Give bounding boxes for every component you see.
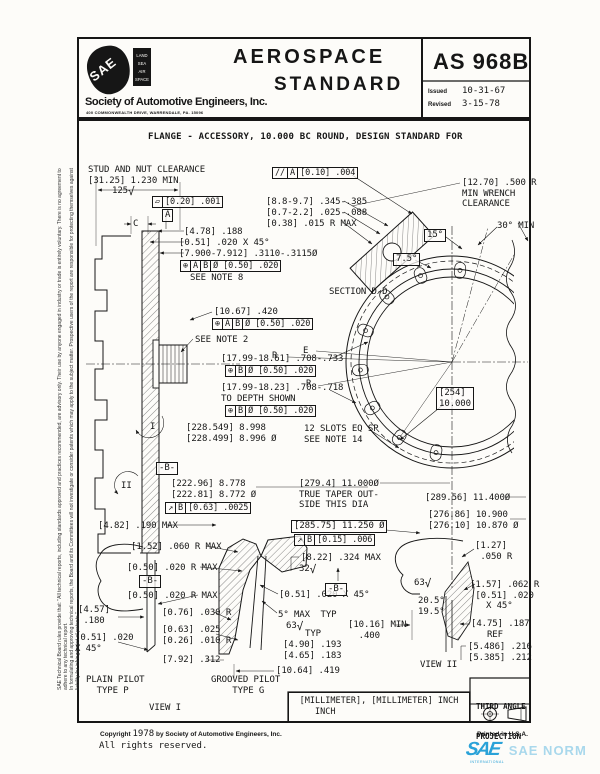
issued-date: 10-31-67: [462, 86, 505, 96]
dim-label: [8.8-9.7] .345-.385: [266, 197, 367, 208]
issued-label: Issued: [428, 89, 447, 95]
surface-finish-mark: 63√: [286, 621, 303, 633]
sae-norm-watermark: SAE SAE NORM: [466, 739, 587, 761]
surface-finish-mark: 125√: [112, 186, 135, 198]
dim-label: 5° MAX TYP: [278, 610, 337, 621]
finish-check-icon: √: [310, 563, 317, 576]
fcf-cell: Ø [0.50] .020: [245, 406, 315, 416]
fcf-cell: ⊕: [226, 366, 235, 376]
datum-box: 7.5°: [393, 253, 420, 266]
dim-label: VIEW I: [149, 703, 181, 714]
logo-tag-land: LAND: [136, 53, 147, 58]
dim-label: II: [121, 481, 132, 492]
fcf-cell: B: [232, 319, 242, 329]
dim-label: [0.51] .020 X 45°: [179, 238, 269, 249]
dim-label: [0.63] .025 [0.26] .010 R: [162, 625, 231, 646]
feature-control-frame: ↗B[0.63] .0025: [165, 502, 251, 514]
doc-number: AS 968B: [433, 49, 529, 75]
datum-box: -B-: [156, 462, 178, 475]
fcf-cell: [0.10] .004: [297, 168, 357, 178]
dim-label: R: [306, 379, 311, 390]
fcf-cell: B: [304, 535, 314, 545]
dim-label: [4.57] .180: [78, 605, 110, 626]
dim-label: [279.4] 11.000Ø TRUE TAPER OUT- SIDE THI…: [299, 479, 379, 511]
fcf-cell: A: [190, 261, 200, 271]
dim-label: [7.92] .312: [162, 655, 221, 666]
dim-label: SECTION D-D: [329, 287, 388, 298]
dim-label: C: [133, 219, 138, 230]
dim-label: [289.56] 11.400Ø: [425, 493, 510, 504]
finish-check-icon: √: [297, 620, 304, 633]
units-line2: INCH: [289, 707, 469, 718]
dim-label: GROOVED PILOT TYPE G: [211, 675, 280, 696]
disclaimer-line1: SAE Technical Board rules provide that: …: [57, 162, 69, 690]
fcf-cell: ⊕: [213, 319, 222, 329]
dim-label: [7.900-7.912] .3110-.3115Ø: [179, 249, 317, 260]
dim-label: [5.486] .216 [5.385] .212: [468, 642, 532, 663]
dim-label: [1.27] .050 R: [475, 541, 512, 562]
feature-control-frame: ↗B[0.15] .006: [294, 534, 375, 546]
fcf-cell: A: [287, 168, 297, 178]
fcf-cell: Ø [0.50] .020: [245, 366, 315, 376]
fcf-cell: [0.15] .006: [314, 535, 374, 545]
org-name: Society of Automotive Engineers, Inc.: [85, 96, 267, 108]
feature-control-frame: //A[0.10] .004: [272, 167, 358, 179]
sae-logo: SAE LAND SEA AIR SPACE: [87, 46, 151, 95]
dim-label: [8.22] .324 MAX: [301, 553, 381, 564]
fcf-cell: Ø [0.50] .020: [210, 261, 280, 271]
dim-label: [222.96] 8.778 [222.81] 8.772 Ø: [171, 479, 256, 500]
dim-label: [228.549] 8.998 [228.499] 8.996 Ø: [186, 423, 276, 444]
surface-finish-mark: 63√: [414, 578, 431, 590]
logo-tag-air: AIR: [139, 69, 146, 74]
dim-label: TO DEPTH SHOWN: [221, 394, 295, 405]
fcf-cell: ⊕: [181, 261, 190, 271]
revised-label: Revised: [428, 102, 451, 108]
dim-label: I: [150, 422, 155, 433]
doc-type-line1: AEROSPACE: [233, 46, 385, 69]
datum-box: [285.75] 11.250 Ø: [291, 520, 387, 533]
datum-box: A: [162, 209, 173, 222]
section-dd: [350, 212, 434, 292]
fcf-cell: B: [235, 366, 245, 376]
dim-label: [12.70] .500 R MIN WRENCH CLEARANCE: [462, 178, 536, 210]
fcf-cell: B: [175, 503, 185, 513]
fcf-cell: ↗: [295, 535, 304, 545]
dim-label: [4.90] .193 [4.65] .183: [283, 640, 342, 661]
fcf-cell: B: [200, 261, 210, 271]
document-page: SAE LAND SEA AIR SPACE: [0, 0, 600, 774]
finish-check-icon: √: [425, 577, 432, 590]
dim-label: 20.5° 19.5°: [418, 596, 445, 617]
org-address: 400 COMMONWEALTH DRIVE, WARRENDALE, PA. …: [86, 110, 203, 115]
fcf-cell: A: [222, 319, 232, 329]
dim-label: [0.51] .020 X 45°: [75, 633, 134, 654]
fcf-cell: B: [235, 406, 245, 416]
finish-check-icon: √: [128, 185, 135, 198]
dim-label: [10.16] MIN .400: [348, 620, 407, 641]
fcf-cell: Ø [0.50] .020: [242, 319, 312, 329]
dim-label: [17.99-18.23] .708-.718: [221, 383, 343, 394]
dim-label: [0.50] .020 R MAX: [127, 591, 217, 602]
copyright-year: 1978: [133, 729, 155, 739]
logo-tag-sea: SEA: [138, 61, 147, 66]
dim-label: PLAIN PILOT TYPE P: [86, 675, 145, 696]
projection-line1: THIRD ANGLE: [476, 702, 526, 712]
datum-box: 15°: [424, 229, 446, 242]
dim-label: [0.38] .015 R MAX: [266, 219, 356, 230]
dim-label: SEE NOTE 8: [190, 273, 243, 284]
sae-blue-logo: SAE: [464, 739, 501, 761]
fcf-cell: ⊕: [226, 406, 235, 416]
units-line1: [MILLIMETER], [MILLIMETER] INCH: [289, 696, 469, 707]
standard-title: FLANGE - ACCESSORY, 10.000 BC ROUND, DES…: [148, 132, 463, 142]
fcf-cell: //: [273, 168, 287, 178]
feature-control-frame: ▱[0.20] .001: [152, 196, 223, 208]
dim-label: TYP: [305, 629, 321, 640]
fcf-cell: ▱: [153, 197, 162, 207]
logo-tag-space: SPACE: [135, 77, 149, 82]
dim-label: [0.76] .030 R: [162, 608, 231, 619]
dim-label: STUD AND NUT CLEARANCE: [88, 165, 205, 176]
dim-label: [1.57] .062 R [0.51] .020 X 45°: [470, 580, 539, 612]
dim-label: 12 SLOTS EQ SP SEE NOTE 14: [304, 424, 378, 445]
copyright-line: Copyright 1978 by Society of Automotive …: [100, 729, 282, 739]
dim-label: [0.7-2.2] .025-.088: [266, 208, 367, 219]
dim-label: [10.64] .419: [276, 666, 340, 677]
fcf-cell: ↗: [166, 503, 175, 513]
dim-label: E: [303, 346, 308, 357]
dim-label: R: [272, 351, 277, 362]
dim-label: [4.82] .190 MAX: [98, 521, 178, 532]
sae-international-text: INTERNATIONAL: [470, 760, 504, 764]
units-note-box: [MILLIMETER], [MILLIMETER] INCH INCH: [288, 692, 470, 722]
dim-label: [4.75] .187 REF: [471, 619, 530, 640]
rights-line: All rights reserved.: [99, 741, 207, 751]
dim-label: [17.99-18.61] .708-.733: [221, 354, 343, 365]
dim-label: 30° MIN: [497, 221, 534, 232]
dim-label: [1.52] .060 R MAX: [131, 542, 221, 553]
feature-control-frame: ⊕ABØ [0.50] .020: [212, 318, 313, 330]
printed-in-usa: Printed in U.S.A.: [477, 731, 528, 738]
surface-finish-mark: 32√: [299, 564, 316, 576]
datum-box: [254] 10.000: [436, 387, 474, 410]
doc-type-line2: STANDARD: [274, 74, 403, 96]
revised-date: 3-15-78: [462, 99, 500, 109]
dim-label: VIEW II: [420, 660, 457, 671]
datum-box: -B-: [325, 583, 347, 596]
fcf-cell: [0.20] .001: [162, 197, 222, 207]
feature-control-frame: ⊕BØ [0.50] .020: [225, 405, 316, 417]
dim-label: [4.78] .188: [184, 227, 243, 238]
feature-control-frame: ⊕BØ [0.50] .020: [225, 365, 316, 377]
feature-control-frame: ⊕ABØ [0.50] .020: [180, 260, 281, 272]
sae-norm-text: SAE NORM: [509, 743, 587, 758]
fcf-cell: [0.63] .0025: [185, 503, 250, 513]
dim-label: [10.67] .420: [214, 307, 278, 318]
dim-label: [0.50] .020 R MAX: [127, 563, 217, 574]
datum-box: -B-: [139, 575, 161, 588]
dim-label: [276.86] 10.900 [276.10] 10.870 Ø: [428, 510, 518, 531]
dim-label: SEE NOTE 2: [195, 335, 248, 346]
